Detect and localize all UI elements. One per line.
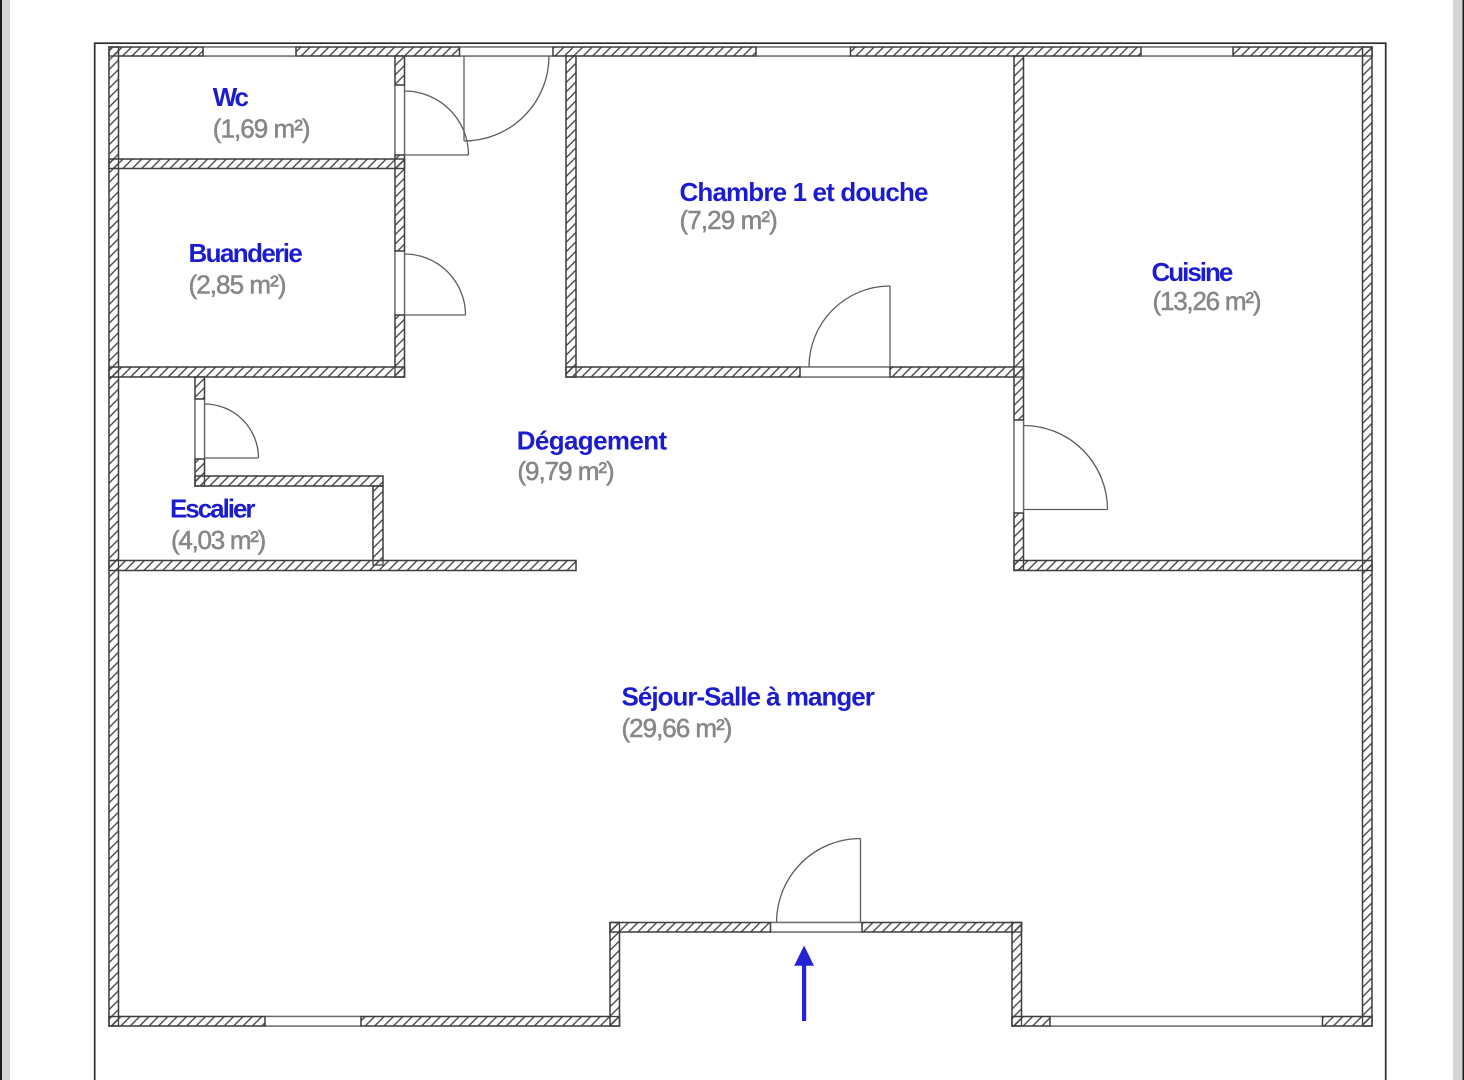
svg-text:(7,29 m²): (7,29 m²) — [680, 205, 778, 235]
svg-text:Escalier: Escalier — [170, 493, 256, 523]
svg-text:Buanderie: Buanderie — [189, 238, 303, 268]
svg-text:Cuisine: Cuisine — [1152, 257, 1234, 287]
svg-text:(29,66 m²): (29,66 m²) — [622, 713, 733, 743]
svg-text:(13,26 m²): (13,26 m²) — [1153, 286, 1262, 316]
svg-text:Wc: Wc — [213, 82, 249, 112]
svg-text:Chambre 1 et douche: Chambre 1 et douche — [680, 177, 929, 207]
svg-text:(4,03 m²): (4,03 m²) — [171, 525, 266, 555]
svg-text:Séjour-Salle à manger: Séjour-Salle à manger — [622, 681, 875, 711]
svg-text:(9,79 m²): (9,79 m²) — [517, 456, 614, 486]
svg-text:Dégagement: Dégagement — [517, 425, 668, 455]
svg-text:(1,69 m²): (1,69 m²) — [213, 114, 311, 144]
svg-text:(2,85 m²): (2,85 m²) — [189, 270, 287, 300]
